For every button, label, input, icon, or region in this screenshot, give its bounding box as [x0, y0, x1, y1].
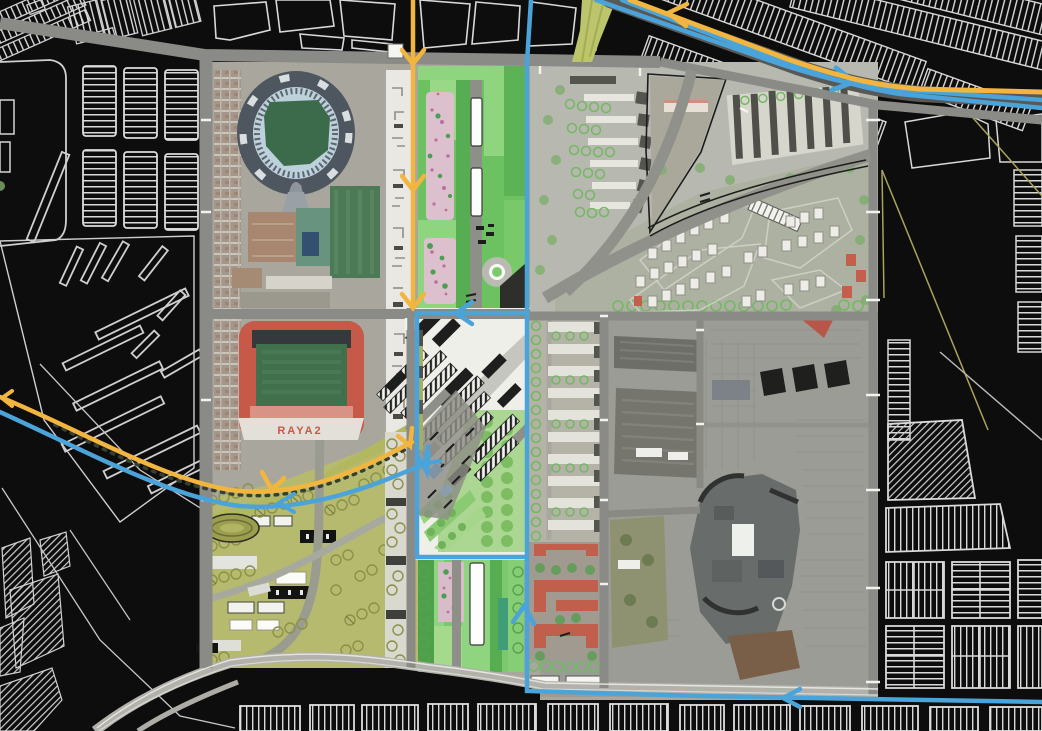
svg-text:RAYA2: RAYA2 [277, 425, 322, 437]
